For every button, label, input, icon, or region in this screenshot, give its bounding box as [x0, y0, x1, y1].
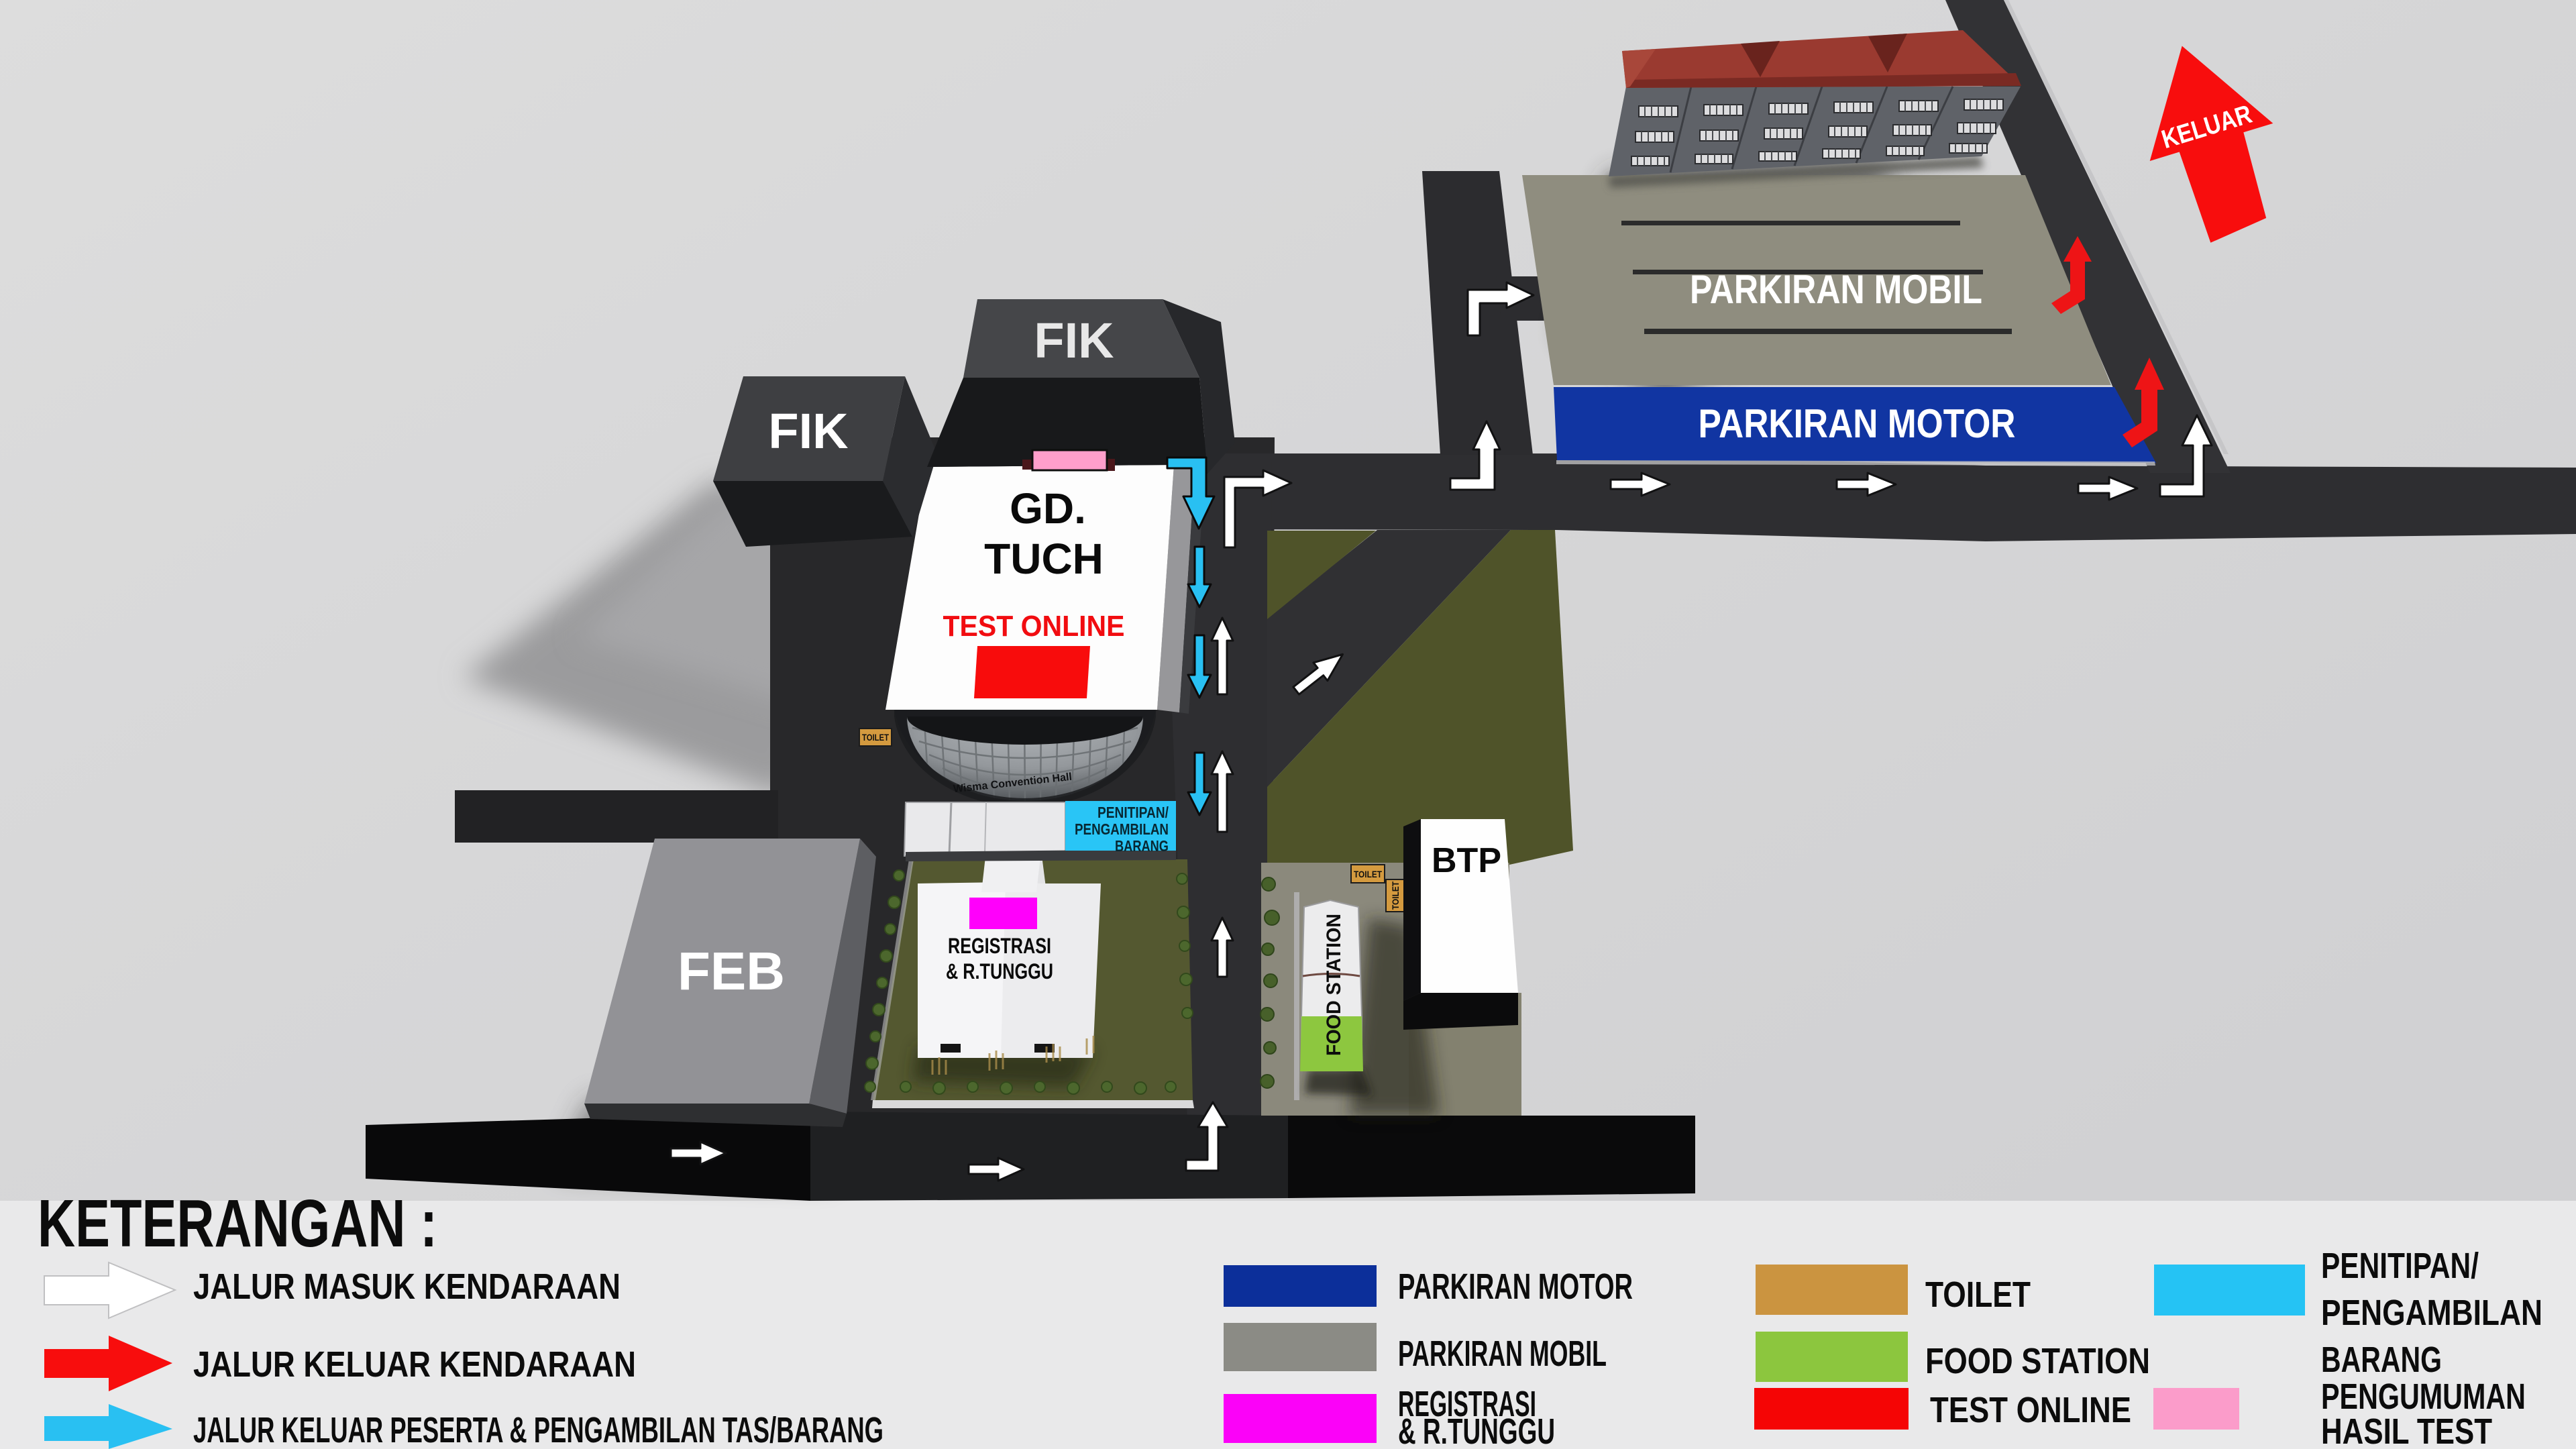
- svg-text:PENGUMUMAN: PENGUMUMAN: [2321, 1377, 2526, 1417]
- svg-text:PENGAMBILAN: PENGAMBILAN: [2321, 1293, 2542, 1333]
- svg-text:& R.TUNGGU: & R.TUNGGU: [1398, 1411, 1555, 1449]
- svg-text:BARANG: BARANG: [1115, 837, 1169, 855]
- svg-text:PENITIPAN/: PENITIPAN/: [1097, 804, 1169, 821]
- svg-text:TOILET: TOILET: [1925, 1275, 2031, 1315]
- svg-text:PARKIRAN MOTOR: PARKIRAN MOTOR: [1699, 401, 2016, 446]
- svg-text:HASIL TEST: HASIL TEST: [2321, 1411, 2492, 1449]
- svg-text:PARKIRAN MOBIL: PARKIRAN MOBIL: [1690, 267, 1982, 312]
- svg-text:TEST ONLINE: TEST ONLINE: [943, 610, 1125, 643]
- svg-text:BTP: BTP: [1432, 841, 1501, 880]
- svg-text:TUCH: TUCH: [984, 535, 1104, 583]
- svg-text:& R.TUNGGU: & R.TUNGGU: [946, 959, 1053, 983]
- svg-text:PENGAMBILAN: PENGAMBILAN: [1075, 820, 1169, 838]
- svg-text:FIK: FIK: [1034, 313, 1114, 368]
- svg-text:FIK: FIK: [768, 403, 848, 459]
- svg-text:REGISTRASI: REGISTRASI: [948, 934, 1051, 958]
- svg-text:PARKIRAN MOTOR: PARKIRAN MOTOR: [1398, 1267, 1633, 1307]
- svg-text:GD.: GD.: [1010, 484, 1086, 533]
- svg-text:JALUR KELUAR PESERTA & PENGAMB: JALUR KELUAR PESERTA & PENGAMBILAN TAS/B…: [193, 1410, 883, 1449]
- svg-text:JALUR KELUAR KENDARAAN: JALUR KELUAR KENDARAAN: [193, 1344, 636, 1385]
- svg-text:FOOD STATION: FOOD STATION: [1925, 1341, 2150, 1381]
- svg-text:TOILET: TOILET: [1354, 869, 1382, 879]
- svg-text:FOOD STATION: FOOD STATION: [1323, 914, 1345, 1056]
- svg-text:TEST ONLINE: TEST ONLINE: [1930, 1390, 2131, 1430]
- svg-text:PARKIRAN MOBIL: PARKIRAN MOBIL: [1398, 1334, 1607, 1374]
- svg-text:FEB: FEB: [678, 941, 785, 1001]
- svg-text:TOILET: TOILET: [862, 732, 889, 743]
- svg-text:BARANG: BARANG: [2321, 1340, 2442, 1380]
- svg-text:JALUR MASUK KENDARAAN: JALUR MASUK KENDARAAN: [193, 1267, 621, 1307]
- svg-text:TOILET: TOILET: [1390, 881, 1401, 910]
- svg-text:KETERANGAN :: KETERANGAN :: [38, 1186, 437, 1261]
- svg-text:PENITIPAN/: PENITIPAN/: [2321, 1246, 2479, 1286]
